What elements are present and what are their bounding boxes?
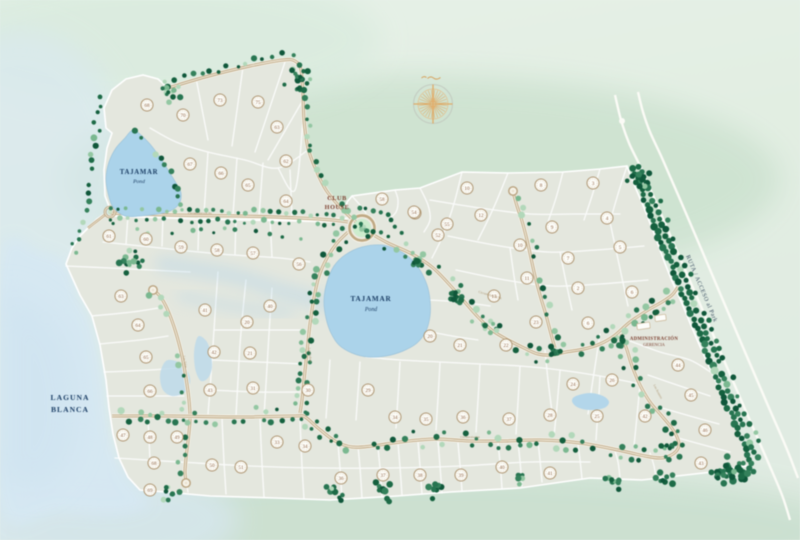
svg-text:Circunvalación: Circunvalación	[460, 435, 480, 439]
svg-text:4: 4	[606, 216, 609, 222]
svg-text:42: 42	[211, 350, 217, 356]
svg-text:40: 40	[499, 465, 505, 471]
svg-text:9: 9	[551, 225, 554, 231]
svg-text:LAGUNA: LAGUNA	[51, 393, 90, 402]
svg-text:73: 73	[217, 98, 223, 104]
svg-text:7: 7	[567, 256, 570, 262]
svg-text:70: 70	[180, 113, 186, 119]
svg-text:Pond: Pond	[132, 179, 145, 185]
svg-text:6: 6	[587, 321, 590, 327]
svg-text:TAJAMAR: TAJAMAR	[120, 169, 158, 176]
svg-text:21: 21	[247, 351, 253, 357]
svg-text:69: 69	[147, 488, 153, 494]
svg-text:33: 33	[274, 440, 280, 446]
svg-text:28: 28	[547, 413, 553, 419]
svg-text:66: 66	[218, 171, 224, 177]
svg-text:42: 42	[642, 414, 648, 420]
svg-text:34: 34	[392, 415, 398, 421]
svg-text:62: 62	[283, 159, 289, 165]
svg-text:20: 20	[427, 334, 433, 340]
svg-text:22: 22	[503, 343, 509, 349]
svg-text:5: 5	[619, 245, 622, 251]
svg-text:Circunvalación Av.: Circunvalación Av.	[188, 211, 213, 215]
svg-text:26: 26	[609, 378, 615, 384]
svg-text:10: 10	[464, 186, 470, 192]
svg-text:8: 8	[540, 183, 543, 189]
svg-text:59: 59	[178, 245, 184, 251]
svg-text:49: 49	[174, 435, 180, 441]
svg-text:25: 25	[594, 414, 600, 420]
svg-text:TAJAMAR: TAJAMAR	[351, 295, 392, 303]
svg-text:64: 64	[135, 323, 141, 329]
svg-text:47: 47	[120, 433, 126, 439]
svg-text:43: 43	[207, 388, 213, 394]
svg-text:CLUB: CLUB	[327, 195, 347, 202]
svg-text:41: 41	[547, 471, 553, 477]
svg-text:HOUSE: HOUSE	[325, 204, 350, 211]
svg-text:29: 29	[365, 388, 371, 394]
svg-text:GERENCIA: GERENCIA	[643, 342, 666, 347]
svg-text:20: 20	[244, 320, 250, 326]
svg-text:44: 44	[675, 363, 681, 369]
svg-text:64: 64	[283, 199, 289, 205]
svg-text:30: 30	[305, 388, 311, 394]
svg-text:58: 58	[214, 248, 220, 254]
svg-text:51: 51	[238, 465, 244, 471]
svg-text:68: 68	[144, 103, 150, 109]
svg-text:37: 37	[506, 417, 512, 423]
svg-text:24: 24	[570, 382, 576, 388]
svg-text:63: 63	[118, 294, 124, 300]
svg-text:61: 61	[106, 234, 112, 240]
svg-text:50: 50	[209, 463, 215, 469]
svg-text:6: 6	[631, 290, 634, 296]
svg-text:45: 45	[688, 393, 694, 399]
svg-text:52: 52	[435, 233, 441, 239]
svg-text:10: 10	[517, 243, 523, 249]
svg-text:66: 66	[147, 389, 153, 395]
svg-text:38: 38	[417, 473, 423, 479]
svg-text:65: 65	[143, 355, 149, 361]
svg-text:40: 40	[267, 304, 273, 310]
svg-text:65: 65	[245, 183, 251, 189]
svg-text:11: 11	[525, 276, 530, 282]
svg-text:48: 48	[147, 435, 153, 441]
svg-text:23: 23	[533, 320, 539, 326]
svg-text:67: 67	[187, 162, 193, 168]
svg-text:55: 55	[444, 222, 450, 228]
svg-text:35: 35	[423, 417, 429, 423]
svg-text:2: 2	[577, 286, 580, 292]
svg-text:57: 57	[250, 251, 256, 257]
svg-text:Pond: Pond	[364, 307, 377, 313]
svg-text:41: 41	[202, 308, 208, 314]
svg-text:68: 68	[151, 461, 157, 467]
svg-text:21: 21	[457, 343, 463, 349]
svg-text:39: 39	[458, 473, 464, 479]
svg-text:75: 75	[255, 100, 261, 106]
svg-text:37: 37	[380, 473, 386, 479]
svg-text:34: 34	[302, 444, 308, 450]
svg-text:58: 58	[379, 197, 385, 203]
svg-text:31: 31	[250, 386, 256, 392]
svg-text:12: 12	[478, 213, 484, 219]
svg-text:36: 36	[338, 476, 344, 482]
svg-text:54: 54	[411, 210, 417, 216]
svg-text:36: 36	[460, 415, 466, 421]
svg-text:3: 3	[592, 181, 595, 187]
svg-text:56: 56	[296, 262, 302, 268]
svg-text:43: 43	[698, 461, 704, 467]
svg-text:60: 60	[143, 237, 149, 243]
svg-text:63: 63	[274, 125, 280, 131]
svg-text:BLANCA: BLANCA	[51, 405, 89, 414]
svg-text:46: 46	[702, 428, 708, 434]
